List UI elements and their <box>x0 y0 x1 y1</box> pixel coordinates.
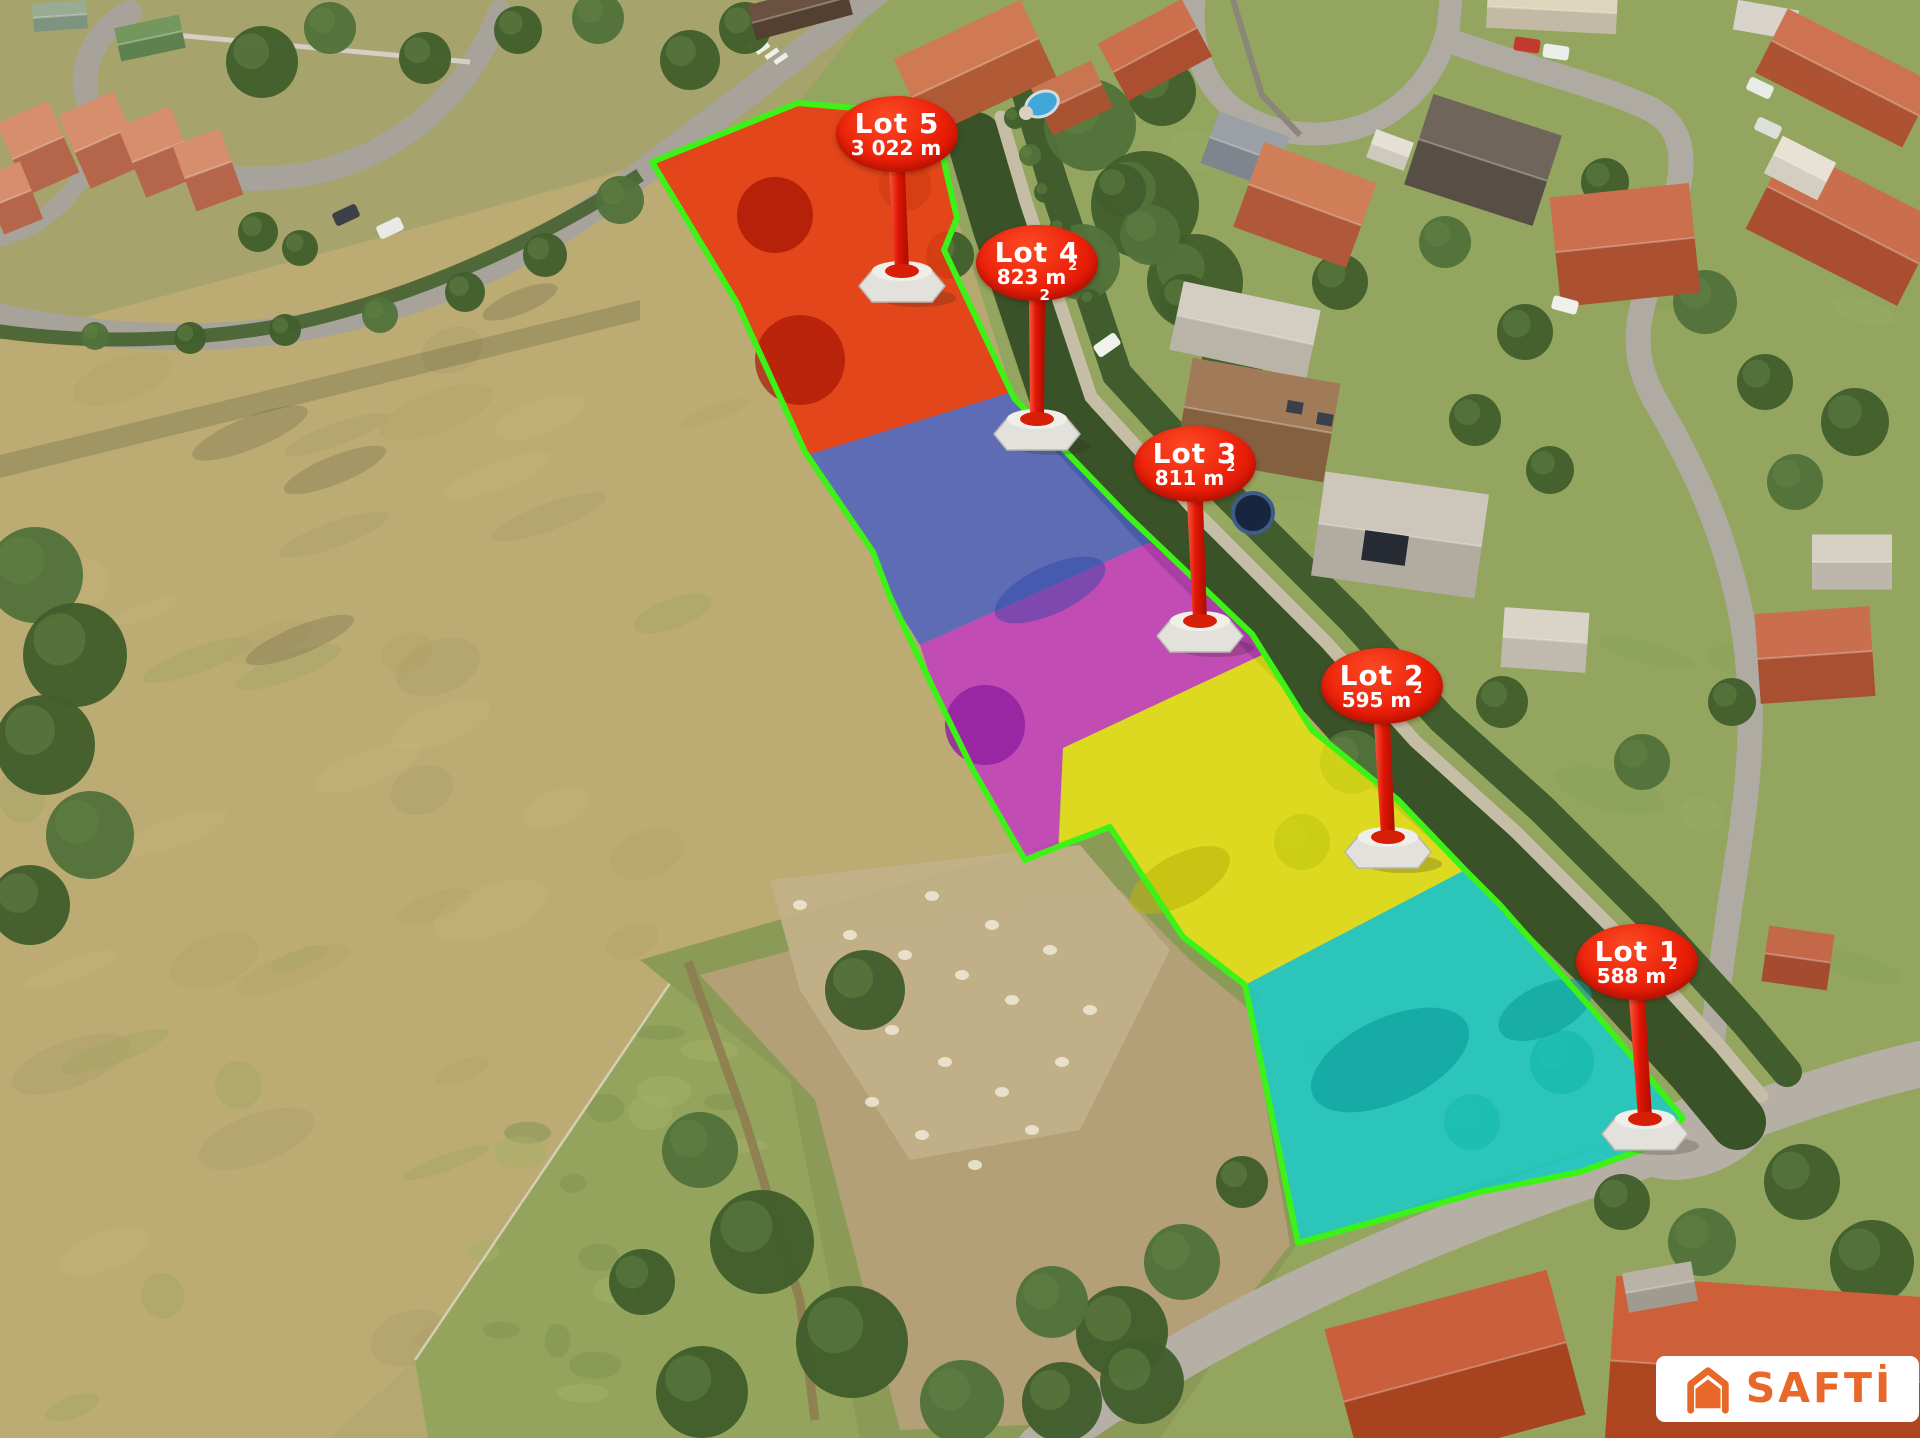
safti-logo: SAFTİ <box>1656 1356 1919 1422</box>
lot-2-label: Lot 2 <box>1340 661 1425 690</box>
aerial-photo-background <box>0 0 1920 1438</box>
lot-3-marker: Lot 3 811 m2 <box>1134 426 1256 502</box>
safti-house-icon <box>1682 1363 1734 1415</box>
lot-2-marker: Lot 2 595 m2 <box>1321 648 1443 724</box>
lot-5-area: 3 022 m <box>851 138 943 159</box>
lot-1-marker: Lot 1 588 m2 <box>1576 924 1698 1000</box>
lot-4-label: Lot 4 <box>995 238 1080 267</box>
lot-5-marker: Lot 5 3 022 m <box>836 96 958 172</box>
lot-3-area: 811 m2 <box>1155 468 1236 489</box>
lot-3-label: Lot 3 <box>1153 439 1238 468</box>
lot-1-label: Lot 1 <box>1595 937 1680 966</box>
lot-4-marker: Lot 4 823 m2 2 <box>976 225 1098 301</box>
safti-logo-text: SAFTİ <box>1746 1364 1894 1412</box>
aerial-subdivision-photo: Lot 5 3 022 m Lot 4 823 m2 2 Lot 3 811 m… <box>0 0 1920 1438</box>
lot-1-area: 588 m2 <box>1597 966 1678 987</box>
lot-4-stray-superscript: 2 <box>1039 288 1049 304</box>
lot-2-area: 595 m2 <box>1342 690 1423 711</box>
lot-5-label: Lot 5 <box>855 109 940 138</box>
lot-4-area: 823 m2 <box>997 267 1078 288</box>
